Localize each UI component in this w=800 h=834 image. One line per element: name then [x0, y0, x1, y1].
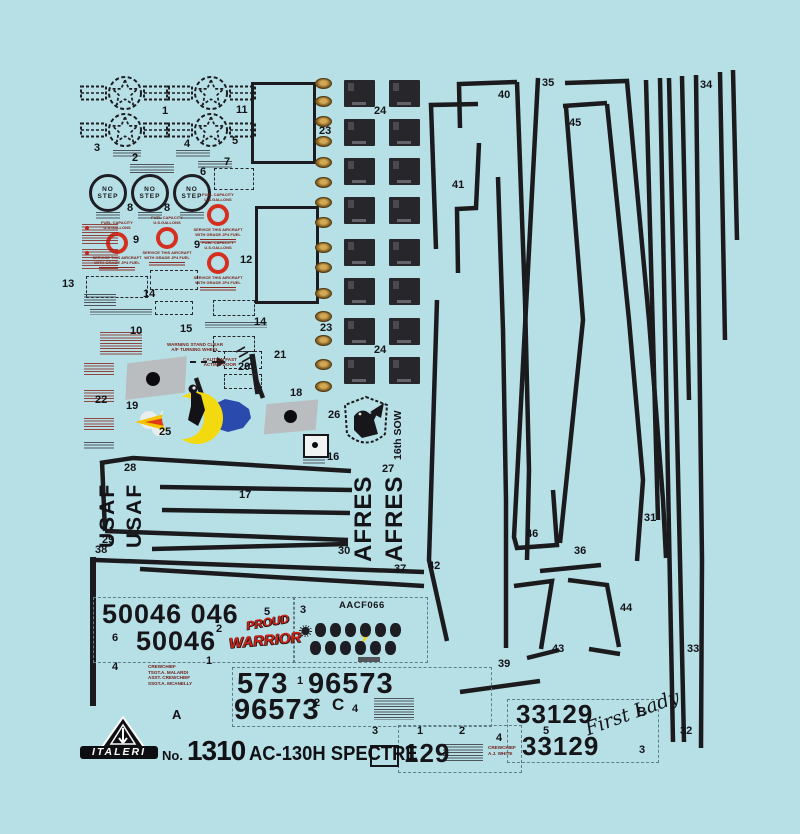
kit-title: No. 1310 AC-130H SPECTRE — [162, 735, 433, 767]
serial-96573: 96573 — [308, 670, 394, 699]
serial-33129: 33129 — [516, 701, 593, 727]
part-number-label: 37 — [394, 564, 406, 575]
part-number-label: 1 — [162, 106, 168, 117]
part-number-label: 31 — [644, 513, 656, 524]
part-number-label: 24 — [374, 106, 386, 117]
to-number-microtext — [200, 287, 236, 291]
part-number-label: 16 — [327, 452, 339, 463]
code-letter-decal: B — [637, 705, 646, 718]
mission-mark-icon — [390, 623, 401, 637]
part-number-label: 43 — [552, 644, 564, 655]
latch-oval-decal — [315, 311, 332, 322]
microtext-block — [180, 212, 204, 219]
italeri-wordmark: ITALERI — [80, 746, 158, 759]
part-number-label: 3 — [639, 745, 645, 756]
red-emblem-dot — [85, 226, 89, 230]
bracket-rect-decal — [155, 301, 193, 315]
part-number-label: 5 — [264, 607, 270, 618]
code-letter-decal: A — [172, 708, 181, 721]
part-number-label: 9 — [194, 240, 200, 251]
latch-oval-decal — [315, 381, 332, 392]
part-number-label: 4 — [352, 704, 358, 715]
latch-oval-decal — [315, 262, 332, 273]
part-number-label: 3 — [94, 143, 100, 154]
black-window-square-decal — [344, 80, 375, 107]
code-letter-decal: C — [332, 696, 344, 713]
mission-mark-icon — [310, 641, 321, 655]
black-window-square-decal — [389, 197, 420, 224]
bracket-rect-decal — [150, 270, 198, 290]
serial-50046: 50046 — [136, 628, 216, 655]
microtext-block — [96, 212, 120, 219]
microtext-block — [90, 309, 152, 315]
mission-mark-icon — [340, 641, 351, 655]
code-aacf066: AACF066 — [339, 601, 385, 611]
part-number-label: 20 — [238, 362, 250, 373]
mission-mark-icon — [385, 641, 396, 655]
part-number-label: 4 — [496, 733, 502, 744]
fuel-gallons-text: U.S.GALLONS — [192, 198, 244, 203]
star-insignia-decal — [81, 77, 169, 109]
part-number-label: 4 — [112, 662, 118, 673]
latch-oval-decal — [315, 116, 332, 127]
part-number-label: 8 — [164, 203, 170, 214]
part-number-label: 41 — [452, 180, 464, 191]
part-number-label: 40 — [498, 90, 510, 101]
part-number-label: 14 — [254, 317, 266, 328]
fuel-filler-decal: FUEL CAPACITY U.S.GALLONS SERVICE THIS A… — [141, 216, 193, 266]
part-number-label: 13 — [62, 279, 74, 290]
kit-no-prefix: No. — [162, 748, 183, 763]
bracket-rect-decal — [213, 300, 255, 316]
latch-oval-decal — [315, 359, 332, 370]
mission-mark-icon — [360, 623, 371, 637]
black-window-square-decal — [344, 278, 375, 305]
no-step-decal: NO STEP — [89, 174, 127, 212]
part-number-label: 33 — [687, 644, 699, 655]
part-number-label: 24 — [374, 345, 386, 356]
latch-oval-decal — [315, 78, 332, 89]
part-number-label: 9 — [133, 235, 139, 246]
mission-mark-icon — [370, 641, 381, 655]
part-number-label: 3 — [300, 605, 306, 616]
part-number-label: 32 — [680, 726, 692, 737]
latch-oval-decal — [315, 136, 332, 147]
kit-number: 1310 — [187, 735, 245, 767]
part-number-label: 7 — [224, 157, 230, 168]
part-number-label: 1 — [206, 656, 212, 667]
latch-oval-decal — [315, 217, 332, 228]
mission-mark-icon — [345, 623, 356, 637]
part-number-label: 1 — [297, 676, 303, 687]
part-number-label: 12 — [240, 255, 252, 266]
part-number-label: 38 — [95, 545, 107, 556]
part-number-label: 30 — [338, 546, 350, 557]
no-step-text: NO STEP — [140, 186, 161, 200]
microtext-block — [176, 150, 210, 157]
black-window-square-decal — [389, 119, 420, 146]
part-number-label: 4 — [184, 139, 190, 150]
to-number-microtext — [149, 262, 185, 266]
sow-rotated-text: 16th SOW — [392, 398, 404, 460]
service-text: WITH GRADE JP4 FUEL — [141, 256, 193, 261]
part-number-label: 11 — [236, 105, 248, 116]
part-number-label: 25 — [159, 427, 171, 438]
part-number-label: 6 — [112, 633, 118, 644]
part-number-label: 2 — [459, 726, 465, 737]
black-window-square-decal — [389, 239, 420, 266]
part-number-label: 28 — [124, 463, 136, 474]
bracket-rect-decal — [213, 336, 255, 352]
mission-mark-icon — [315, 623, 326, 637]
red-emblem-dot — [85, 251, 89, 255]
black-window-square-decal — [344, 239, 375, 266]
mission-mark-icon — [375, 623, 386, 637]
part-number-label: 6 — [200, 167, 206, 178]
part-number-label: 2 — [216, 624, 222, 635]
usaf-title-decal: USAF — [123, 468, 147, 548]
microtext-block — [84, 294, 116, 306]
black-window-square-decal — [389, 158, 420, 185]
microtext-block — [138, 212, 162, 219]
microtext-block — [84, 442, 114, 450]
outline-rect-decal-11 — [251, 82, 316, 164]
part-number-label: 14 — [143, 289, 155, 300]
window-dot — [284, 410, 297, 423]
fuel-gallons-text: U.S.GALLONS — [141, 221, 193, 226]
star-insignia-decal — [167, 114, 255, 146]
mission-mark-icon — [330, 623, 341, 637]
bracket-rect-decal — [214, 168, 254, 190]
part-number-label: 8 — [127, 203, 133, 214]
part-number-label: 2 — [314, 698, 320, 709]
bracket-rect-decal — [224, 374, 262, 389]
part-number-label: 5 — [232, 136, 238, 147]
part-number-label: 35 — [542, 78, 554, 89]
latch-oval-decal — [315, 96, 332, 107]
service-text: WITH GRADE JP4 FUEL — [192, 281, 244, 286]
black-window-square-decal — [389, 357, 420, 384]
black-window-square-decal — [344, 357, 375, 384]
part-number-label: 34 — [700, 80, 712, 91]
microtext-block — [303, 457, 325, 465]
latch-oval-decal — [315, 177, 332, 188]
mission-mark-icon — [325, 641, 336, 655]
part-number-label: 36 — [574, 546, 586, 557]
outline-rect-decal-12 — [255, 206, 319, 304]
part-number-label: 18 — [290, 388, 302, 399]
part-number-label: 19 — [126, 401, 138, 412]
part-number-label: 17 — [239, 490, 251, 501]
sow-badge — [340, 394, 392, 456]
black-window-square-decal — [389, 318, 420, 345]
mission-bar — [358, 657, 380, 662]
decal-sheet: NO STEP NO STEP NO STEP FUEL CAPACITY U.… — [0, 0, 800, 834]
crewchief-stencil: CREWCHIEF TSGT.A. MALARDI ASST. CREWCHIE… — [148, 664, 212, 686]
microtext-block — [84, 418, 114, 430]
part-number-label: 1 — [417, 726, 423, 737]
black-window-square-decal — [344, 158, 375, 185]
latch-oval-decal — [315, 242, 332, 253]
part-number-label: 23 — [320, 323, 332, 334]
black-window-square-decal — [344, 318, 375, 345]
black-window-square-decal — [344, 197, 375, 224]
black-window-square-decal — [389, 80, 420, 107]
part-number-label: 22 — [95, 395, 107, 406]
fuel-ring-icon — [156, 227, 178, 249]
fuel-ring-icon — [207, 204, 229, 226]
part-number-label: 46 — [526, 529, 538, 540]
latch-oval-decal — [315, 157, 332, 168]
microtext-block — [84, 363, 114, 375]
part-number-label: 5 — [543, 726, 549, 737]
part-number-label: 2 — [132, 153, 138, 164]
no-step-text: NO STEP — [98, 186, 119, 200]
crab-emblem-icon — [299, 625, 312, 637]
window-dot — [146, 372, 160, 386]
part-number-label: 39 — [498, 659, 510, 670]
square-dot-decal — [303, 434, 329, 458]
part-number-label: 26 — [328, 410, 340, 421]
black-window-square-decal — [344, 119, 375, 146]
italeri-logo — [101, 716, 145, 748]
black-window-square-decal — [389, 278, 420, 305]
crew-line: A.J. WHITE — [488, 751, 528, 757]
part-number-label: 10 — [130, 326, 142, 337]
part-number-label: 3 — [372, 726, 378, 737]
crew-line: SSGT.A. MCANELLY — [148, 681, 212, 687]
crewchief-stencil: CREWCHIEF A.J. WHITE — [488, 745, 528, 756]
afres-title-decal: AFRES — [350, 466, 378, 562]
kit-name: AC-130H SPECTRE — [249, 743, 418, 766]
service-text: WITH GRADE JP4 FUEL — [192, 233, 244, 238]
mission-mark-icon — [355, 641, 366, 655]
part-number-label: 44 — [620, 603, 632, 614]
square-dot — [312, 442, 318, 448]
fuel-ring-icon — [207, 252, 229, 274]
serial-96573: 96573 — [234, 696, 320, 725]
afres-title-decal: AFRES — [381, 464, 409, 562]
part-number-label: 21 — [274, 350, 286, 361]
latch-oval-decal — [315, 197, 332, 208]
part-number-label: 27 — [382, 464, 394, 475]
latch-oval-decal — [315, 335, 332, 346]
part-number-label: 42 — [428, 561, 440, 572]
latch-oval-decal — [315, 288, 332, 299]
part-number-label: 45 — [569, 118, 581, 129]
microtext-block — [130, 164, 174, 173]
part-number-label: 15 — [180, 324, 192, 335]
